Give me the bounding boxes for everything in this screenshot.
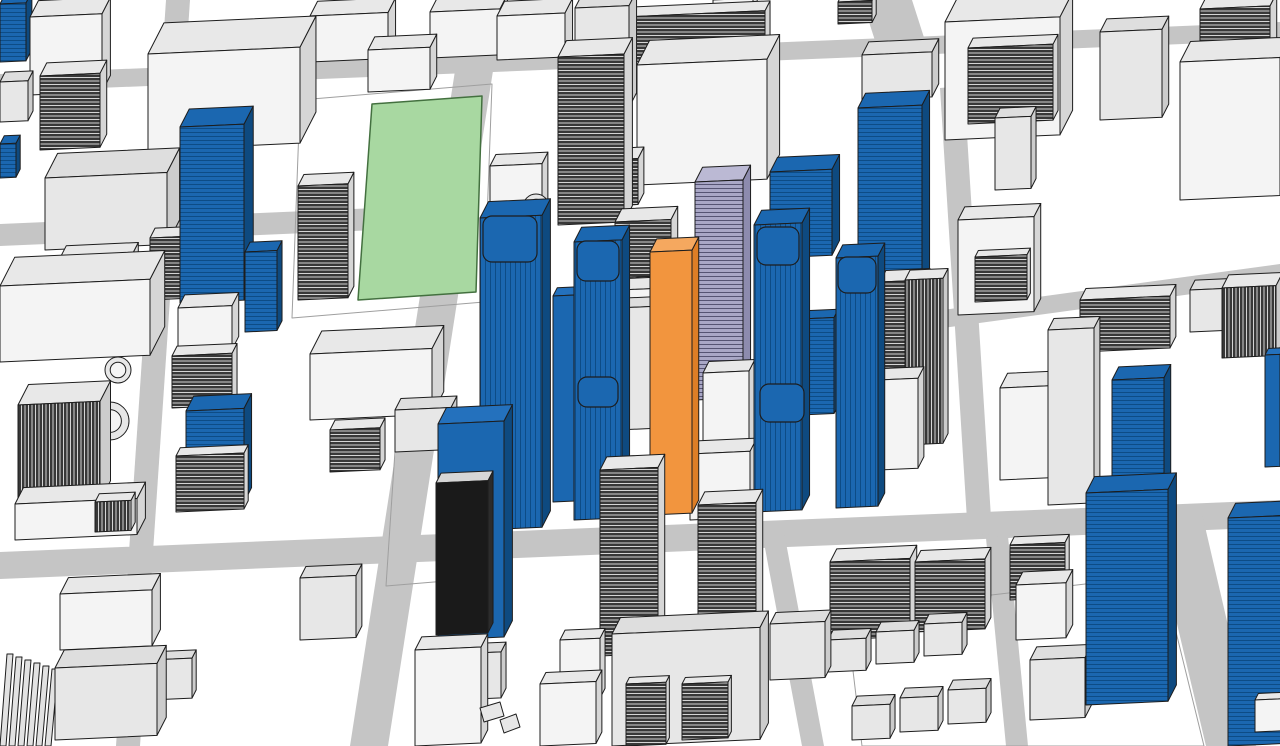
tilted-cube-2	[500, 714, 520, 733]
rowhouse-4	[852, 704, 890, 740]
blue-sliver-b	[553, 295, 575, 502]
box-avenue-a3	[770, 622, 825, 680]
gray-bottom-center-a-side	[481, 634, 488, 743]
blue-cap-tower-e	[838, 257, 876, 293]
gray-east-a6-b	[1030, 658, 1085, 720]
blue-behind-black-side	[504, 405, 512, 637]
hatch-top-center-e	[838, 0, 872, 24]
gray-top-left-b	[0, 81, 28, 122]
box-bottom-center-c-side	[596, 670, 602, 743]
slab-top-right-2	[1048, 328, 1094, 505]
blue-cap-tower-d-mid	[760, 384, 804, 422]
rowhouse-2	[876, 630, 914, 664]
gray-base-right-side	[918, 367, 924, 468]
gray-east-a6-a	[1016, 583, 1066, 640]
hatch-base-left-side	[244, 445, 248, 509]
gray-west-broadway-side	[356, 564, 362, 637]
dark-tower-top-center	[558, 54, 624, 225]
box-top-center-a	[430, 9, 500, 58]
big-slab-top-right	[1180, 58, 1280, 201]
box-top-center-b	[497, 13, 565, 60]
hatch-south-park	[330, 428, 380, 472]
hatch-tower-park-west	[298, 184, 348, 300]
gray-top-right-b	[1100, 29, 1162, 120]
hatch-rowblock-b-side	[985, 547, 991, 628]
rowhouse-6	[948, 688, 986, 724]
blue-tower-1-left	[180, 124, 244, 303]
gray-slab-bottom-left-2	[55, 663, 157, 740]
slab-top-right-2-side	[1094, 316, 1100, 502]
blue-tower-a-side	[542, 199, 550, 527]
gray-west-broadway	[300, 575, 356, 640]
blue-cap-tower-b	[577, 241, 619, 281]
gray-stepped-top-left	[45, 173, 167, 250]
axonometric-city-map	[0, 0, 1280, 746]
blue-corner-tower-a	[0, 3, 26, 62]
gray-bottom-center-a	[415, 647, 481, 746]
hatch-right-mid-4b-side	[1027, 248, 1030, 300]
blue-edge-sliver	[1265, 354, 1280, 467]
dark-tower-top-center-side	[624, 38, 632, 222]
podium-twins-side	[760, 611, 768, 739]
blue-sliver-east-1	[245, 251, 277, 332]
gray-top-right-b-side	[1162, 16, 1169, 117]
rowhouse-3	[924, 622, 962, 656]
blue-sliver-east-1-side	[277, 241, 282, 331]
blue-corner-tower-b	[0, 143, 16, 178]
box-bottom-center-c	[540, 681, 596, 746]
rowhouse-5	[900, 696, 938, 732]
blue-cap-tower-b-mid	[578, 377, 618, 407]
blue-r2	[1086, 489, 1168, 705]
gray-bottom-left-rows	[60, 590, 152, 650]
hatch-tower-park-west-side	[348, 172, 354, 297]
hatch-tower-right-2-side	[943, 268, 948, 443]
black-tower	[436, 481, 488, 635]
blue-tower-e-side	[878, 243, 885, 506]
blue-tower-d	[754, 223, 802, 512]
park-green	[358, 96, 482, 300]
hatch-podium-b-side	[728, 675, 731, 738]
hatch-top-left-tower-side	[100, 60, 107, 147]
gray-back-slab-left	[0, 279, 150, 362]
box-bottom-right-corner	[1255, 699, 1280, 732]
orange-tower-side	[692, 237, 699, 513]
rowhouse-1	[828, 638, 866, 672]
blue-tower-d-side	[802, 208, 810, 510]
hatch-panel-top-right-side	[1053, 34, 1058, 120]
hatch-small-left-2	[95, 500, 131, 532]
blue-cap-tower-a	[483, 216, 537, 262]
blue-r2-side	[1168, 473, 1176, 701]
gray-complex-top-right-side	[1060, 0, 1073, 135]
hatch-podium-a-side	[666, 676, 669, 745]
blue-tower-e	[836, 256, 878, 508]
hatch-top-left-tower	[40, 73, 100, 150]
blue-rear-slab-right-side	[832, 154, 840, 255]
black-tower-side	[488, 471, 493, 633]
blue-cap-tower-d	[757, 227, 799, 265]
hatch-podium-a	[626, 682, 666, 746]
hatch-podium-b	[682, 682, 728, 740]
gray-tower-top-right-c	[995, 116, 1031, 190]
blue-r3-roof	[1228, 501, 1280, 518]
castle-building	[1222, 286, 1276, 358]
gray-right-mid-4-side	[1034, 203, 1041, 311]
city-map-canvas	[0, 0, 1280, 746]
drum-b-inner	[110, 362, 126, 378]
box-north-of-park	[368, 47, 430, 92]
hatch-base-left	[176, 453, 244, 512]
hatch-right-mid-4b	[975, 255, 1027, 302]
gray-tower-top-right-c-side	[1031, 107, 1036, 189]
